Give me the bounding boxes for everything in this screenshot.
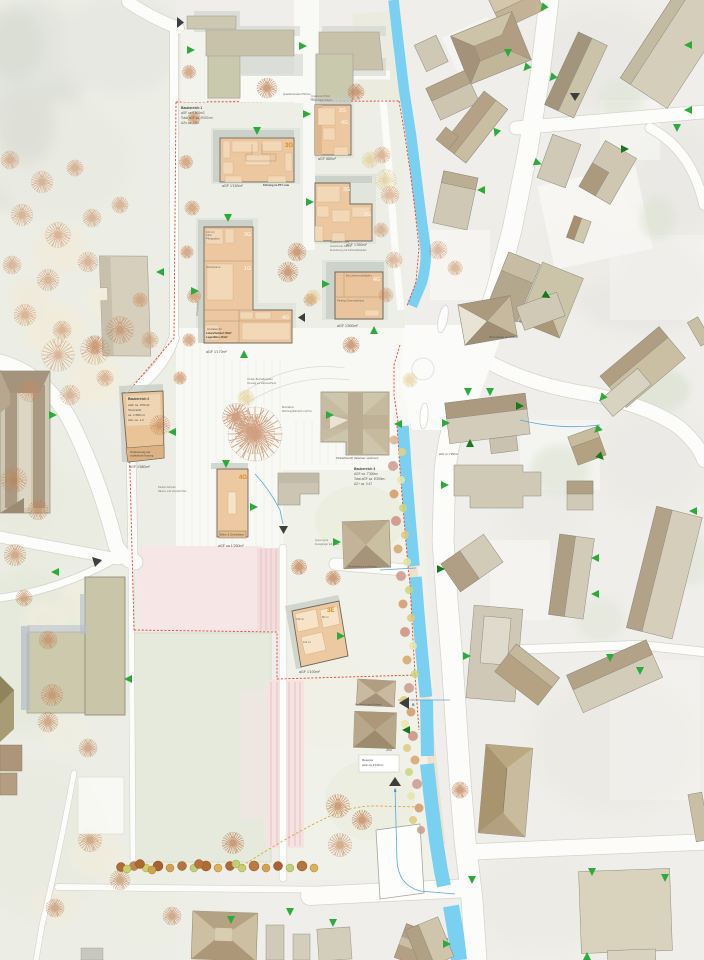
svg-text:Quartierstr Pförtn: Quartierstr Pförtn [311, 95, 331, 98]
svg-text:Total aGF: Total aGF [128, 408, 142, 412]
svg-text:Total aGF ca. 6'300m²: Total aGF ca. 6'300m² [354, 477, 385, 481]
svg-text:Neubebauung Wohnen: Neubebauung Wohnen [355, 703, 382, 707]
svg-text:aGF co 1'350m²: aGF co 1'350m² [439, 452, 458, 456]
svg-text:Reserve: Reserve [362, 758, 374, 762]
svg-text:AGF ca. 7'300m²: AGF ca. 7'300m² [354, 472, 378, 476]
svg-text:Umbau Bushaltestellen: Umbau Bushaltestellen [247, 378, 273, 381]
svg-text:Wohnbebauung Wohnen: Wohnbebauung Wohnen [348, 565, 377, 569]
svg-text:Parking Obermietshaus: Parking Obermietshaus [337, 299, 365, 303]
svg-text:Total aGF ca. 9'000 m²: Total aGF ca. 9'000 m² [181, 116, 213, 120]
svg-text:Richtung Bahnhof und Pos: Richtung Bahnhof und Pos [282, 410, 312, 413]
svg-text:3G: 3G [343, 187, 350, 193]
svg-text:3G: 3G [386, 747, 393, 752]
svg-text:aGF 1'100m²: aGF 1'100m² [299, 670, 321, 674]
svg-text:4G: 4G [282, 315, 289, 321]
svg-text:3G: 3G [244, 232, 251, 238]
svg-text:Wohn- & Gründerhaus: Wohn- & Gründerhaus [220, 534, 245, 537]
svg-text:2G: 2G [339, 108, 346, 114]
svg-text:Schulstrasse: Schulstrasse [195, 300, 200, 316]
svg-text:ca. 1'380 m²: ca. 1'380 m² [128, 413, 145, 417]
svg-text:aGF ca. 970m2: aGF ca. 970m2 [128, 403, 150, 407]
svg-text:aGF 880m²: aGF 880m² [318, 157, 337, 161]
svg-text:Anmieten für: Anmieten für [207, 327, 222, 331]
svg-text:AZн ca. 0.94: AZн ca. 0.94 [181, 121, 199, 125]
svg-text:Parkier Fahrrad: Parkier Fahrrad [158, 486, 176, 489]
svg-text:Baubereich 3: Baubereich 3 [354, 467, 375, 471]
svg-text:aGF 1'170m²: aGF 1'170m² [206, 350, 228, 354]
svg-text:Bushaltest.: Bushaltest. [282, 406, 295, 409]
svg-text:Räume und Vorplatz Plan: Räume und Vorplatz Plan [158, 490, 187, 493]
svg-text:Werkräume: Werkräume [206, 265, 221, 269]
svg-text:Lager/Büro 461m²: Lager/Büro 461m² [206, 335, 228, 339]
svg-text:Erweiterung mit Fahrradabstell: Erweiterung mit Fahrradabstellen [330, 249, 367, 252]
svg-text:aGF 1'500m²: aGF 1'500m² [337, 324, 359, 328]
svg-text:umgestaltet Fläche: umgestaltet Fläche [311, 99, 333, 102]
svg-text:Führung im PP 1 rate: Führung im PP 1 rate [263, 183, 290, 187]
svg-text:aGF 1'150m²: aGF 1'150m² [222, 184, 244, 188]
svg-text:4G: 4G [239, 475, 247, 481]
svg-text:aGF ca 1'250m²: aGF ca 1'250m² [218, 544, 244, 548]
svg-text:Fussgänger mit Pöller: Fussgänger mit Pöller [315, 543, 339, 546]
svg-text:Pflegeplatz: Pflegeplatz [206, 237, 220, 241]
svg-text:2G: 2G [364, 212, 371, 218]
svg-text:Querung für: Querung für [315, 539, 329, 542]
svg-text:musikalische Nutzung: musikalische Nutzung [130, 454, 154, 457]
svg-text:3G: 3G [285, 143, 293, 149]
svg-text:Baubereich 2: Baubereich 2 [128, 397, 149, 401]
svg-text:aGF 1'580m²: aGF 1'580m² [129, 465, 151, 469]
svg-text:Quartierstrasse Pförtner: Quartierstrasse Pförtner [283, 92, 311, 96]
svg-text:Leben/Verkauf 748m²: Leben/Verkauf 748m² [206, 331, 232, 335]
svg-text:Klosterbereich (Alterswo. Lwoh: Klosterbereich (Alterswo. Lwohnen) [336, 456, 379, 460]
svg-text:Quartierstr Pförtn: Quartierstr Pförtn [330, 241, 350, 244]
svg-text:aGF ca 1'100m²: aGF ca 1'100m² [362, 763, 383, 767]
svg-text:Baubereich 1: Baubereich 1 [181, 106, 202, 110]
svg-text:1G: 1G [244, 266, 251, 272]
svg-text:80 m²: 80 m² [322, 615, 329, 619]
svg-text:110 m²: 110 m² [303, 640, 311, 644]
svg-text:Bio-Lebensmittelladen: Bio-Lebensmittelladen [346, 274, 372, 278]
svg-text:aGF ca 9'500m2: aGF ca 9'500m2 [181, 111, 205, 115]
svg-text:bestehende Fläche: bestehende Fläche [330, 245, 352, 248]
svg-text:Wohnhäuser ca 1'200m²: Wohnhäuser ca 1'200m² [489, 335, 518, 339]
svg-text:Umsteig auf Dienste/Pend: Umsteig auf Dienste/Pend [247, 382, 277, 385]
svg-text:4G: 4G [373, 277, 380, 283]
svg-text:AZ+ ca. 1.2: AZ+ ca. 1.2 [128, 418, 144, 422]
svg-text:150 m²: 150 m² [296, 617, 304, 621]
svg-text:AZ+ ca. 0.47: AZ+ ca. 0.47 [354, 482, 372, 486]
svg-text:3E: 3E [327, 608, 334, 614]
svg-text:162 m²: 162 m² [206, 230, 215, 234]
svg-text:4G: 4G [341, 120, 348, 126]
